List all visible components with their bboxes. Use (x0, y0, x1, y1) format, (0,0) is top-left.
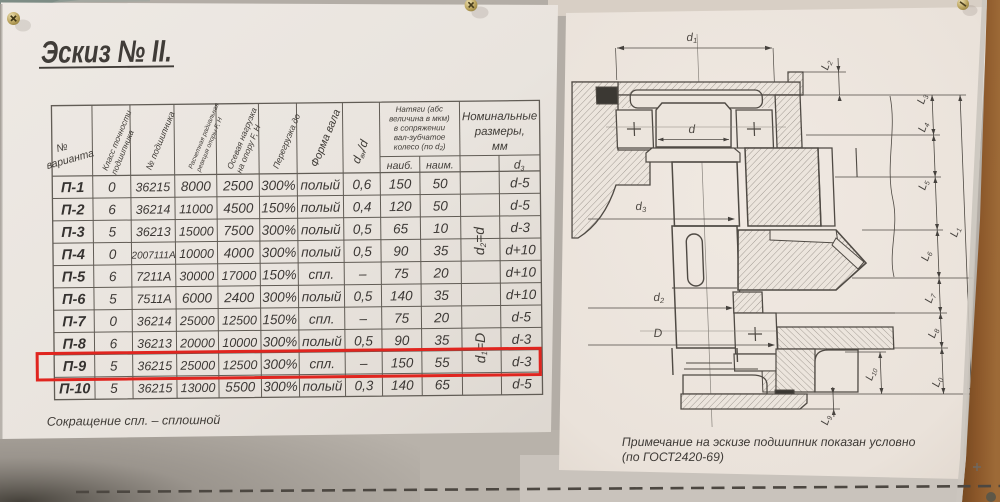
svg-text:300%: 300% (262, 289, 297, 304)
svg-text:17000: 17000 (222, 269, 257, 283)
svg-text:25000: 25000 (179, 358, 215, 372)
svg-text:20: 20 (433, 310, 450, 325)
svg-text:300%: 300% (261, 222, 296, 237)
svg-text:150: 150 (391, 355, 414, 370)
svg-text:6: 6 (110, 336, 118, 351)
svg-text:0: 0 (109, 247, 117, 262)
svg-text:4000: 4000 (224, 245, 255, 260)
svg-text:П-3: П-3 (61, 225, 84, 241)
svg-text:7511А: 7511А (136, 292, 171, 306)
svg-text:П-1: П-1 (61, 180, 84, 196)
svg-text:120: 120 (389, 199, 412, 214)
svg-text:d2=d: d2=d (471, 226, 488, 256)
svg-text:спл.: спл. (309, 311, 335, 326)
svg-text:полый: полый (301, 200, 341, 215)
svg-text:90: 90 (394, 333, 410, 348)
svg-text:(по ГОСТ2420-69): (по ГОСТ2420-69) (622, 450, 725, 464)
svg-text:36214: 36214 (137, 314, 172, 328)
svg-text:мм: мм (492, 141, 508, 153)
svg-text:6000: 6000 (182, 290, 213, 305)
svg-text:наиб.: наиб. (387, 160, 413, 172)
svg-text:–: – (358, 266, 367, 281)
svg-text:0: 0 (109, 314, 117, 329)
svg-text:спл.: спл. (309, 356, 335, 371)
svg-text:–: – (359, 356, 368, 371)
svg-text:П-5: П-5 (62, 269, 86, 285)
svg-text:П-7: П-7 (62, 314, 86, 330)
svg-text:150: 150 (389, 176, 412, 191)
svg-text:36215: 36215 (137, 359, 172, 373)
svg-text:полый: полый (301, 244, 341, 259)
svg-text:150%: 150% (262, 267, 297, 282)
svg-text:0,5: 0,5 (354, 333, 373, 348)
svg-text:полый: полый (300, 177, 340, 192)
svg-text:0,5: 0,5 (354, 289, 373, 304)
svg-text:55: 55 (434, 355, 450, 370)
svg-text:11000: 11000 (179, 202, 213, 216)
svg-text:36215: 36215 (138, 381, 173, 395)
svg-text:Эскиз № II.: Эскиз № II. (41, 33, 172, 69)
svg-text:полый: полый (303, 378, 343, 393)
svg-text:0,5: 0,5 (353, 222, 372, 237)
svg-text:140: 140 (390, 288, 413, 303)
svg-text:12500: 12500 (222, 313, 257, 327)
svg-text:2500: 2500 (222, 178, 254, 193)
svg-text:300%: 300% (261, 178, 296, 193)
svg-text:12500: 12500 (223, 358, 258, 372)
svg-text:П-2: П-2 (61, 202, 84, 218)
svg-text:150%: 150% (261, 200, 296, 215)
svg-text:75: 75 (394, 311, 410, 326)
svg-text:П-10: П-10 (59, 381, 91, 397)
svg-text:36215: 36215 (135, 180, 170, 194)
svg-text:6: 6 (109, 269, 117, 284)
svg-text:20: 20 (433, 265, 450, 280)
svg-text:75: 75 (394, 266, 410, 281)
svg-text:0,3: 0,3 (355, 378, 374, 393)
svg-text:15000: 15000 (179, 224, 214, 238)
svg-text:d+10: d+10 (505, 265, 536, 280)
svg-text:0,4: 0,4 (353, 199, 372, 214)
svg-text:300%: 300% (263, 334, 298, 349)
svg-text:150%: 150% (262, 312, 297, 327)
svg-text:d-5: d-5 (511, 309, 531, 324)
svg-text:36214: 36214 (136, 202, 171, 216)
svg-text:90: 90 (393, 244, 409, 259)
svg-text:П-8: П-8 (63, 336, 87, 352)
svg-text:30000: 30000 (179, 269, 214, 283)
svg-text:d-3: d-3 (512, 354, 532, 369)
svg-text:140: 140 (391, 378, 414, 393)
svg-text:300%: 300% (263, 379, 298, 394)
svg-text:0,6: 0,6 (352, 177, 371, 192)
svg-text:П-4: П-4 (62, 247, 85, 263)
svg-text:50: 50 (433, 198, 449, 213)
svg-text:4500: 4500 (223, 201, 254, 216)
svg-text:П-9: П-9 (63, 359, 86, 375)
svg-text:65: 65 (393, 221, 409, 236)
svg-text:5: 5 (110, 358, 118, 373)
svg-text:35: 35 (434, 288, 450, 303)
svg-text:36213: 36213 (136, 225, 171, 239)
svg-text:колесо (по d2): колесо (по d2) (394, 142, 446, 153)
svg-text:5: 5 (108, 224, 116, 239)
svg-text:10: 10 (433, 221, 449, 236)
svg-text:Сокращение спл. – сплошной: Сокращение спл. – сплошной (47, 413, 221, 429)
svg-text:d-3: d-3 (512, 332, 532, 347)
svg-text:35: 35 (434, 333, 450, 348)
svg-text:20000: 20000 (179, 336, 215, 350)
svg-text:П-6: П-6 (62, 292, 86, 308)
svg-text:Натяги (абс: Натяги (абс (396, 104, 443, 114)
svg-text:величина в мкм): величина в мкм) (389, 114, 450, 124)
svg-text:полый: полый (302, 289, 342, 304)
svg-text:D: D (653, 326, 663, 340)
svg-text:d+10: d+10 (506, 287, 537, 302)
svg-text:13000: 13000 (181, 381, 216, 395)
svg-text:2400: 2400 (223, 290, 255, 305)
svg-text:7211А: 7211А (136, 269, 171, 283)
svg-text:полый: полый (302, 334, 342, 349)
svg-text:0,5: 0,5 (353, 244, 372, 259)
svg-text:6: 6 (108, 202, 116, 217)
svg-text:5: 5 (110, 381, 118, 396)
svg-text:36213: 36213 (137, 337, 172, 351)
svg-text:полый: полый (301, 222, 341, 237)
svg-text:d+10: d+10 (505, 242, 536, 257)
svg-text:вал-зубчатое: вал-зубчатое (394, 133, 446, 143)
svg-text:7500: 7500 (223, 223, 254, 238)
svg-text:0: 0 (108, 180, 116, 195)
svg-text:d: d (688, 122, 696, 136)
svg-text:Примечание на эскизе подшип: Примечание на эскизе подшипник показан у… (622, 435, 916, 449)
svg-text:Номинальные: Номинальные (462, 110, 537, 123)
svg-text:65: 65 (435, 377, 451, 392)
svg-text:300%: 300% (262, 245, 297, 260)
svg-text:10000: 10000 (222, 336, 257, 350)
svg-text:2007111А: 2007111А (130, 250, 176, 261)
svg-text:d-3: d-3 (510, 220, 530, 235)
svg-text:35: 35 (433, 243, 449, 258)
svg-text:50: 50 (433, 176, 449, 191)
svg-text:8000: 8000 (181, 179, 212, 194)
svg-text:25000: 25000 (179, 314, 215, 328)
svg-text:5: 5 (109, 291, 117, 306)
svg-text:спл.: спл. (308, 267, 334, 282)
svg-text:d-5: d-5 (510, 198, 530, 213)
svg-text:5500: 5500 (225, 379, 256, 394)
svg-text:–: – (358, 311, 367, 326)
svg-text:в сопряжении: в сопряжении (394, 123, 446, 133)
svg-text:размеры,: размеры, (474, 126, 525, 139)
svg-text:наим.: наим. (426, 159, 454, 171)
svg-text:10000: 10000 (179, 247, 214, 261)
svg-text:d-5: d-5 (512, 376, 532, 391)
svg-text:300%: 300% (263, 357, 298, 372)
svg-text:d-5: d-5 (510, 175, 530, 190)
